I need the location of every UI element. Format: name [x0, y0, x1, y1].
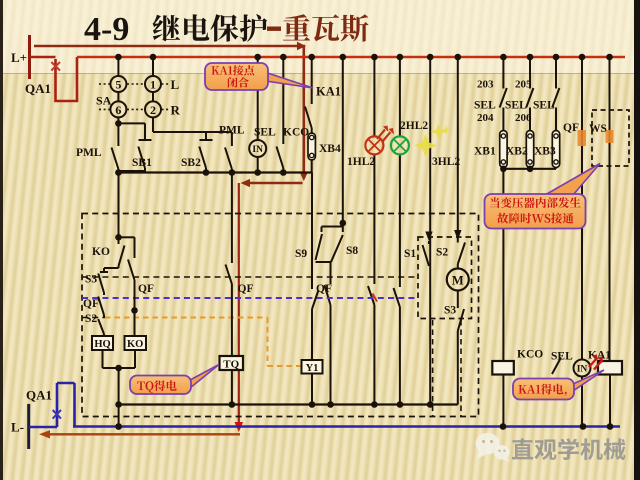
svg-text:PML: PML: [76, 147, 102, 159]
svg-text:M: M: [452, 273, 464, 287]
svg-text:SEL: SEL: [533, 100, 555, 112]
svg-text:4-9: 4-9: [84, 11, 129, 48]
svg-text:KA1: KA1: [316, 85, 341, 99]
svg-text:5: 5: [115, 78, 121, 92]
svg-text:203: 203: [477, 79, 494, 91]
svg-text:1HL2: 1HL2: [347, 156, 375, 168]
svg-text:SEL: SEL: [254, 127, 276, 139]
svg-text:SB1: SB1: [132, 157, 152, 169]
svg-text:QA1: QA1: [25, 81, 51, 96]
svg-text:1: 1: [150, 78, 156, 92]
svg-text:S3: S3: [85, 274, 97, 286]
svg-text:6: 6: [115, 103, 121, 117]
svg-text:R: R: [171, 102, 181, 117]
svg-text:205: 205: [515, 79, 532, 91]
svg-text:KA1: KA1: [588, 350, 611, 362]
svg-text:206: 206: [515, 112, 532, 124]
svg-text:XB2: XB2: [506, 146, 528, 158]
svg-text:L+: L+: [11, 50, 27, 65]
svg-text:S2: S2: [85, 313, 97, 325]
svg-text:KCO: KCO: [517, 349, 543, 361]
svg-text:SEL: SEL: [505, 100, 527, 112]
svg-text:QF: QF: [563, 122, 579, 134]
svg-text:XB4: XB4: [319, 143, 341, 155]
svg-text:L-: L-: [11, 420, 24, 435]
svg-text:L: L: [171, 77, 180, 92]
svg-text:IN: IN: [577, 365, 588, 375]
svg-text:S9: S9: [295, 248, 307, 260]
svg-text:SEL: SEL: [474, 100, 496, 112]
svg-text:QF: QF: [83, 298, 99, 310]
svg-text:SA: SA: [96, 94, 112, 108]
svg-text:S1: S1: [404, 248, 416, 260]
svg-text:S2: S2: [436, 247, 448, 259]
svg-text:PML: PML: [219, 125, 245, 137]
svg-text:S8: S8: [346, 245, 358, 257]
svg-text:KCO: KCO: [283, 127, 309, 139]
svg-text:QA1: QA1: [26, 388, 52, 403]
svg-text:S3: S3: [444, 305, 456, 317]
svg-text:TQ: TQ: [223, 358, 239, 370]
svg-text:HQ: HQ: [94, 339, 110, 350]
svg-text:SB2: SB2: [181, 157, 201, 169]
svg-text:XB1: XB1: [474, 146, 496, 158]
svg-text:QF: QF: [138, 283, 154, 295]
svg-text:204: 204: [477, 112, 494, 124]
svg-text:3HL2: 3HL2: [432, 156, 460, 168]
svg-text:XB3: XB3: [534, 146, 556, 158]
svg-text:2: 2: [150, 103, 156, 117]
svg-text:QF: QF: [238, 283, 254, 295]
svg-text:2HL2: 2HL2: [400, 120, 428, 132]
svg-text:SEL: SEL: [551, 351, 573, 363]
svg-text:Y1: Y1: [306, 363, 319, 374]
svg-text:KO: KO: [127, 339, 143, 350]
svg-text:WS: WS: [589, 123, 607, 135]
svg-text:IN: IN: [252, 145, 263, 155]
svg-text:KO: KO: [92, 246, 110, 258]
